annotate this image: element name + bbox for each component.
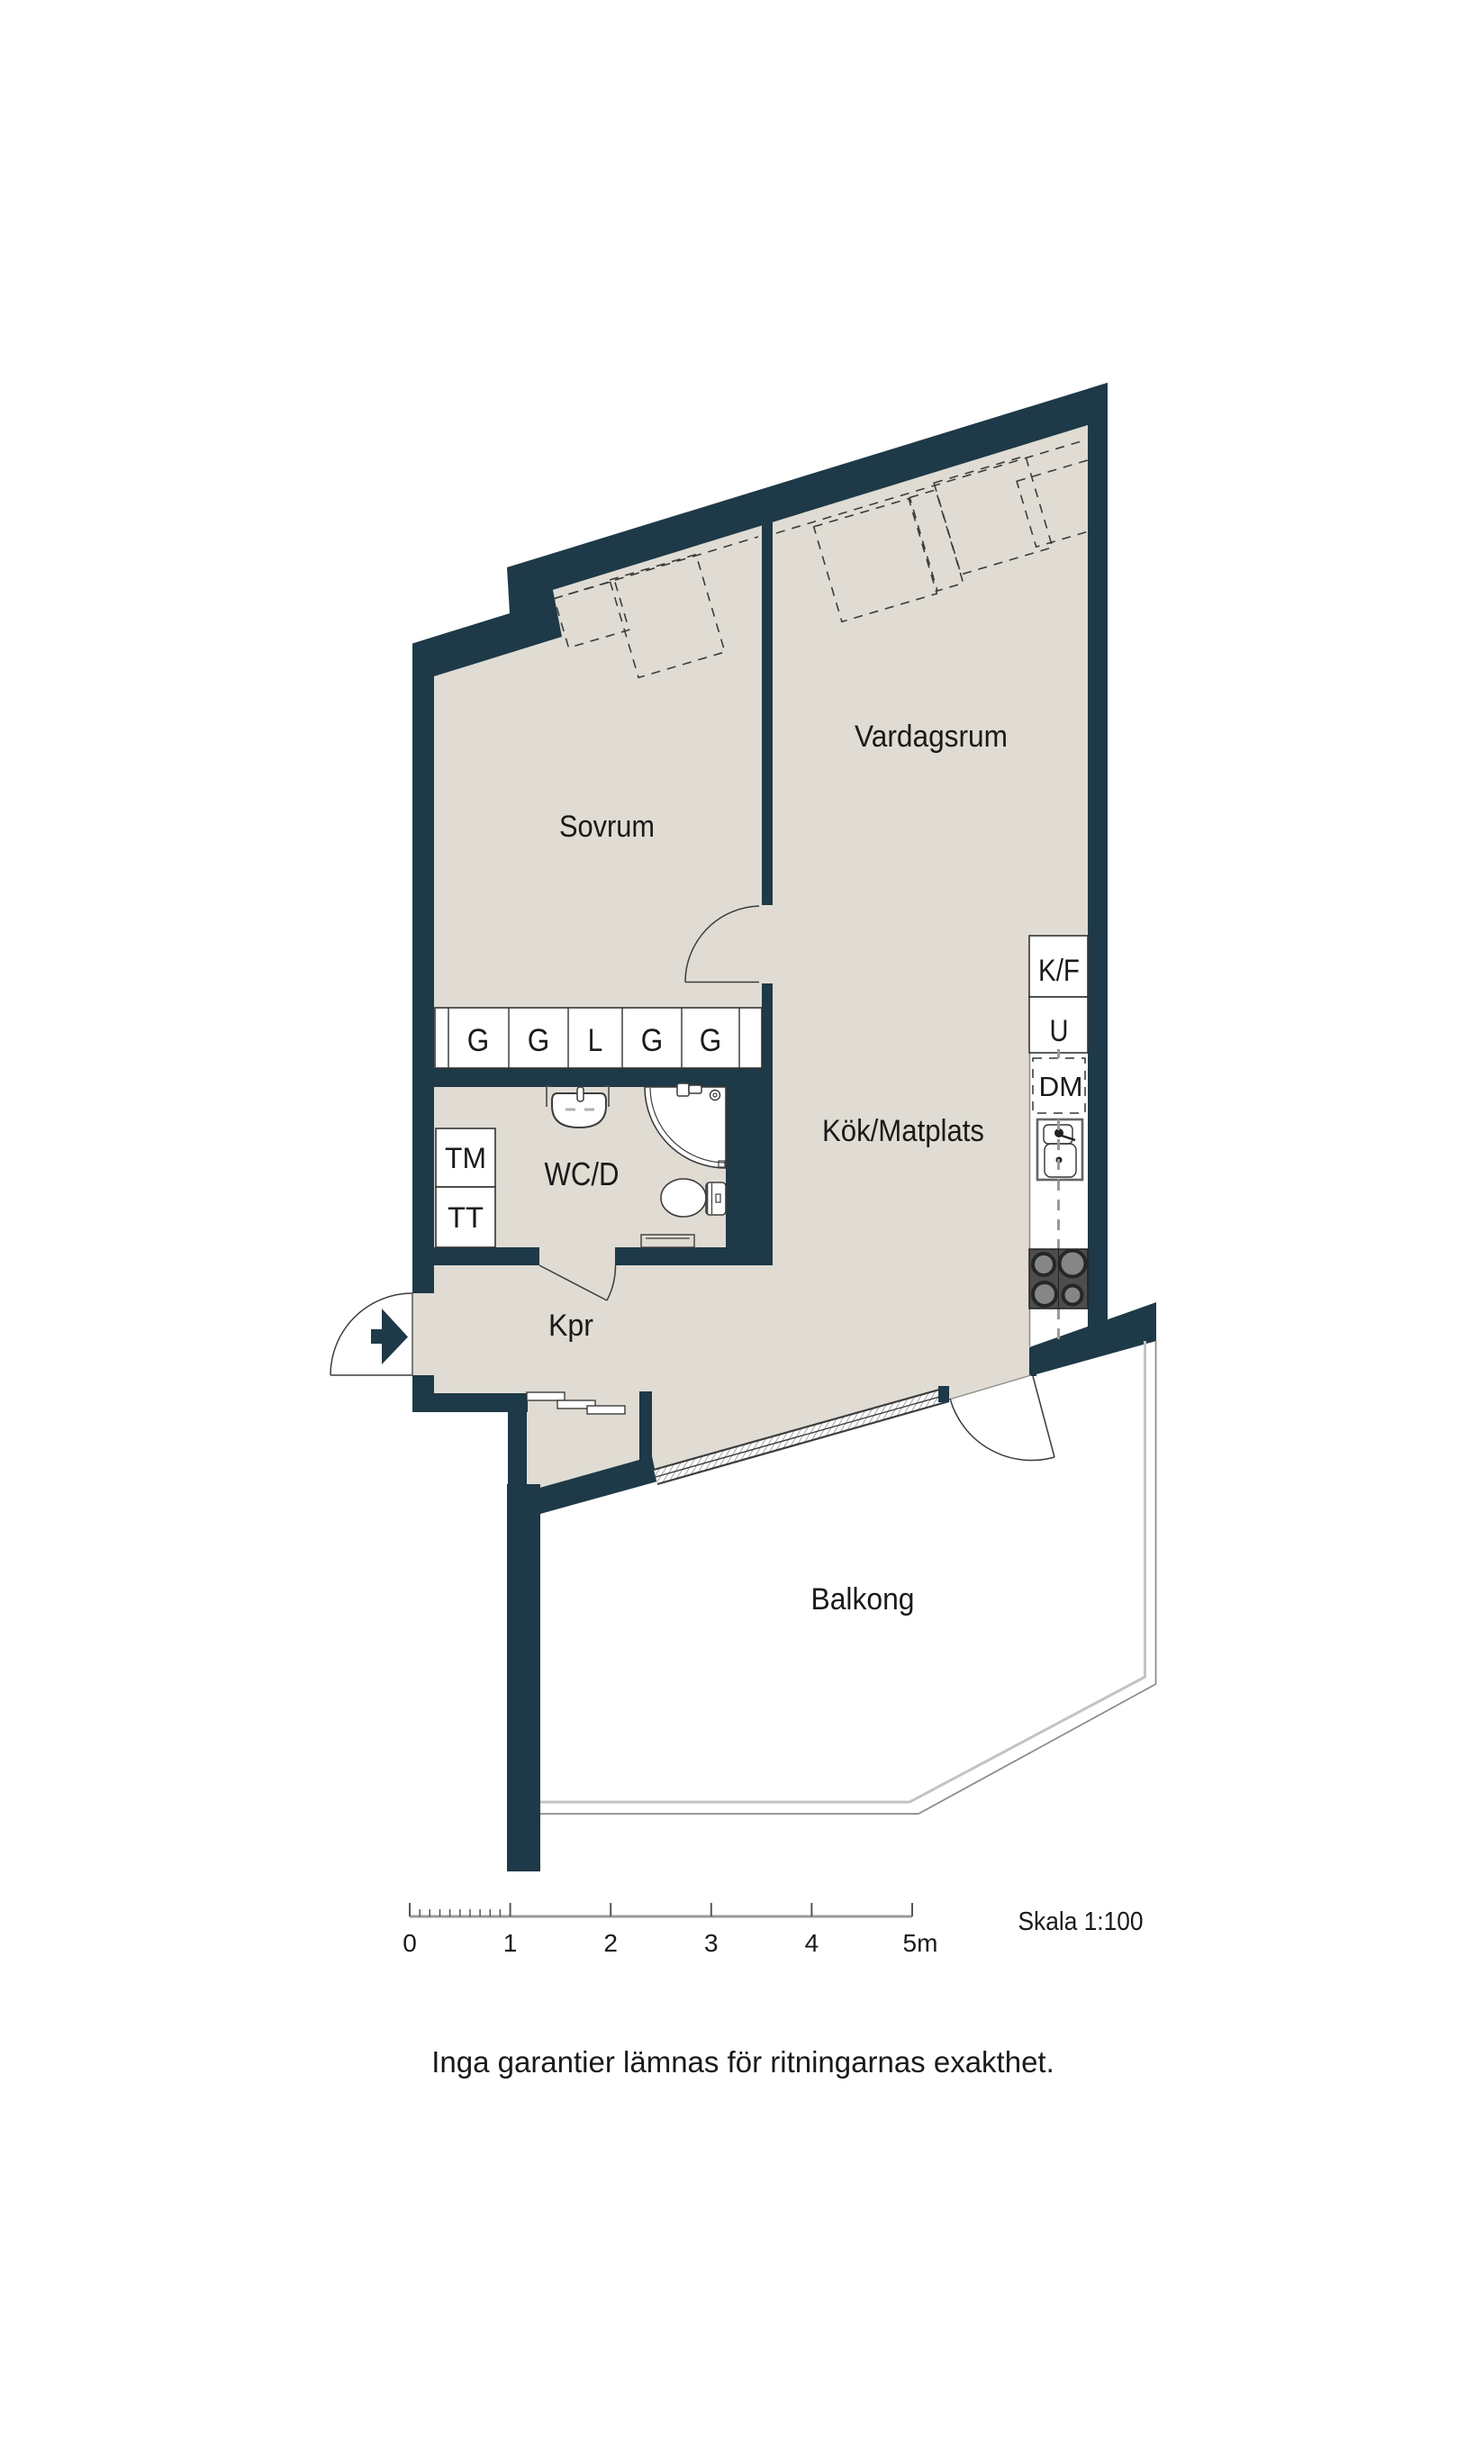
svg-text:WC/D: WC/D xyxy=(545,1155,620,1192)
svg-text:G: G xyxy=(641,1023,664,1058)
svg-text:1: 1 xyxy=(503,1929,518,1957)
svg-text:Skala 1:100: Skala 1:100 xyxy=(1018,1907,1144,1936)
svg-text:0: 0 xyxy=(403,1929,417,1957)
svg-text:G: G xyxy=(467,1023,490,1058)
svg-text:2: 2 xyxy=(603,1929,618,1957)
svg-text:Vardagsrum: Vardagsrum xyxy=(855,720,1008,754)
svg-text:U: U xyxy=(1050,1014,1069,1048)
svg-text:3: 3 xyxy=(704,1929,719,1957)
svg-text:TT: TT xyxy=(448,1201,484,1234)
svg-text:TM: TM xyxy=(445,1142,486,1174)
svg-text:Inga garantier lämnas för ritn: Inga garantier lämnas för ritningarnas e… xyxy=(431,2045,1054,2079)
svg-text:K/F: K/F xyxy=(1038,954,1080,988)
svg-text:L: L xyxy=(588,1023,603,1058)
svg-text:Sovrum: Sovrum xyxy=(559,810,655,844)
svg-text:5m: 5m xyxy=(903,1929,938,1957)
svg-text:4: 4 xyxy=(805,1929,819,1957)
svg-text:G: G xyxy=(528,1023,550,1058)
svg-text:DM: DM xyxy=(1039,1071,1083,1102)
svg-text:G: G xyxy=(700,1023,722,1058)
svg-text:Balkong: Balkong xyxy=(811,1582,915,1617)
svg-text:Kök/Matplats: Kök/Matplats xyxy=(822,1114,984,1148)
svg-text:Kpr: Kpr xyxy=(548,1309,593,1343)
